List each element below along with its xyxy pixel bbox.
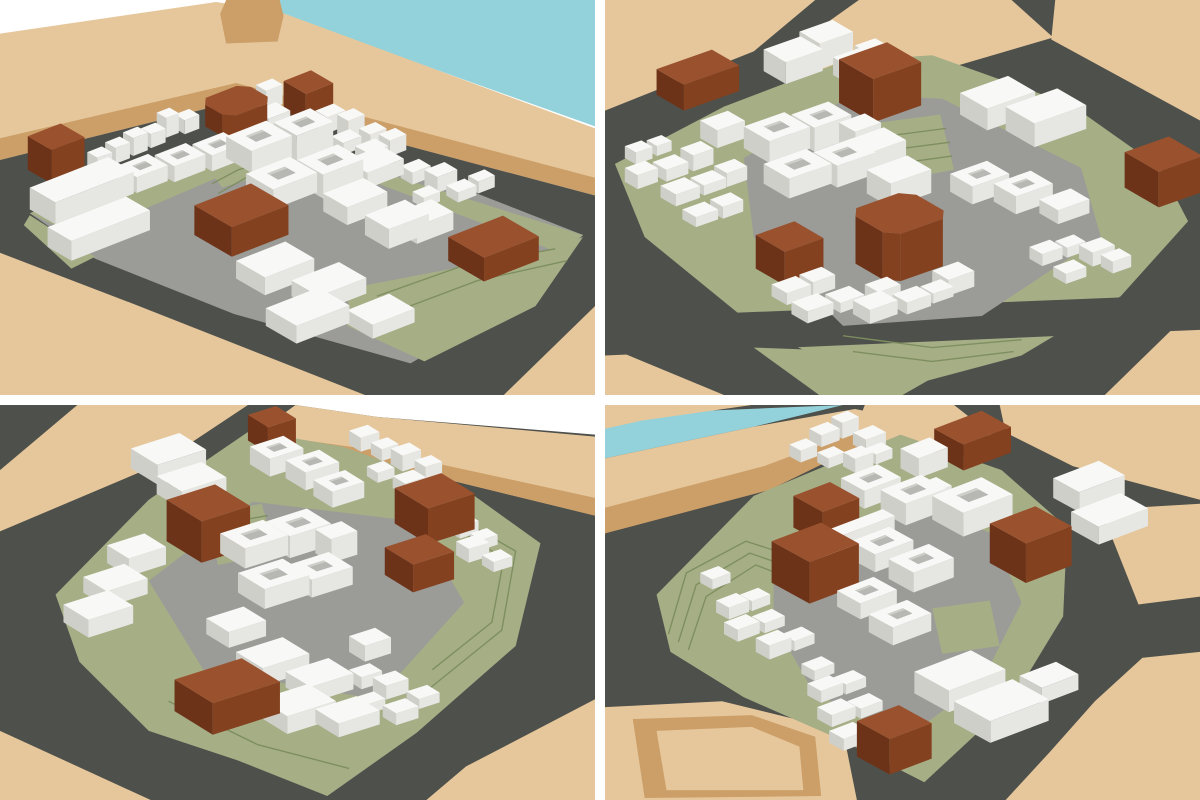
massing-model-view-1 [0,0,595,395]
massing-model-view-3 [0,405,595,800]
render-panel-bottom-right [605,405,1200,800]
render-panel-bottom-left [0,405,595,800]
massing-model-view-2 [605,0,1200,395]
massing-model-view-4 [605,405,1200,800]
rendering-grid [0,0,1200,800]
render-panel-top-right [605,0,1200,395]
render-panel-top-left [0,0,595,395]
